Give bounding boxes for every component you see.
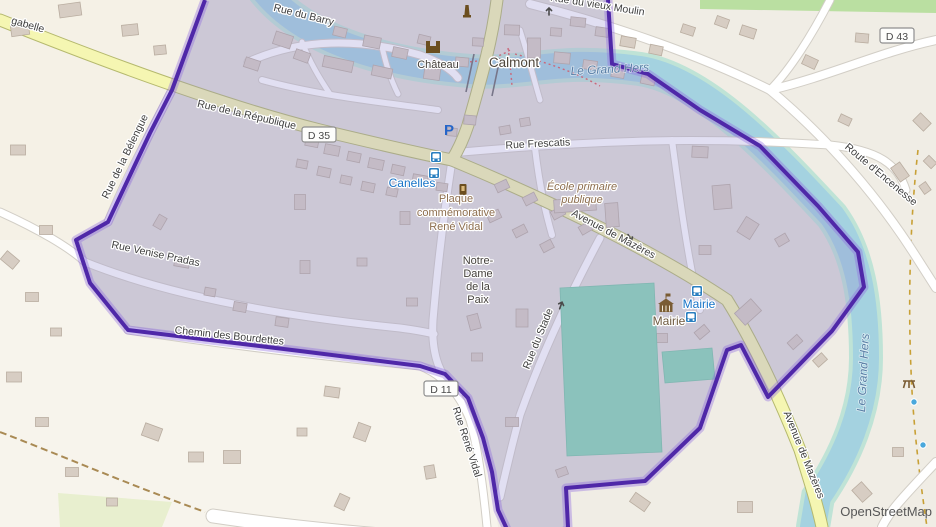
map-label: Calmont xyxy=(489,55,540,70)
map-label: Paix xyxy=(467,294,489,306)
map-label: Notre- xyxy=(463,255,494,267)
bus-stop-icon xyxy=(692,286,703,297)
building xyxy=(620,36,637,48)
map-label: Dame xyxy=(463,268,492,280)
building xyxy=(26,293,39,302)
building xyxy=(855,33,869,43)
map-label: de la xyxy=(466,281,491,293)
building xyxy=(424,465,436,480)
road-ref-badge: D 11 xyxy=(424,381,458,396)
osm-map-canvas[interactable]: P D 43D 35D 11 gabelleRue du BarryRue du… xyxy=(0,0,936,527)
building xyxy=(36,418,49,427)
building xyxy=(738,502,753,513)
building xyxy=(297,428,307,436)
building xyxy=(40,226,53,235)
bus-stop-icon xyxy=(686,312,697,323)
map-label: Canelles xyxy=(389,176,436,190)
map-label: publique xyxy=(560,194,603,206)
map-label: École primaire xyxy=(547,180,617,193)
map-label: commémorative xyxy=(417,207,495,219)
attribution-link[interactable]: OpenStreetMap xyxy=(840,504,932,519)
building xyxy=(11,145,26,155)
map-label: Château xyxy=(417,59,459,71)
road-ref-badge: D 35 xyxy=(302,127,336,142)
building xyxy=(107,498,118,506)
parking-icon: P xyxy=(444,122,454,139)
trail-marker-icon xyxy=(911,399,917,405)
building xyxy=(121,24,138,37)
svg-text:P: P xyxy=(444,122,454,139)
map-label: Mairie xyxy=(683,297,716,311)
building xyxy=(224,451,241,464)
bus-stop-icon xyxy=(431,152,442,163)
road-ref-text: D 43 xyxy=(886,31,908,43)
map-label: Plaque xyxy=(439,193,473,205)
road-ref-text: D 11 xyxy=(430,384,452,396)
building xyxy=(189,452,204,462)
map-viewport[interactable]: P D 43D 35D 11 gabelleRue du BarryRue du… xyxy=(0,0,936,527)
trail-marker-icon xyxy=(920,442,926,448)
building xyxy=(324,386,340,398)
building xyxy=(66,468,79,477)
map-label: Mairie xyxy=(653,314,686,328)
road-ref-badge: D 43 xyxy=(880,28,914,43)
road-ref-text: D 35 xyxy=(308,130,330,142)
building xyxy=(51,328,62,336)
map-label: René Vidal xyxy=(429,221,483,233)
building xyxy=(154,45,167,55)
building xyxy=(58,2,82,18)
building xyxy=(7,372,22,382)
building xyxy=(893,448,904,457)
